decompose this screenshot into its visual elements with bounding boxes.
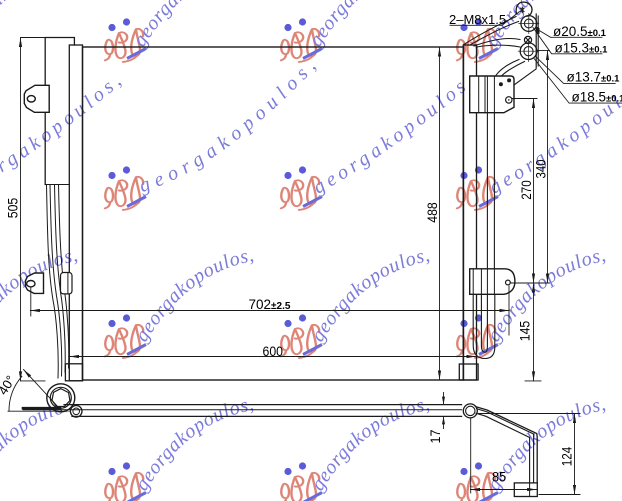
svg-text:georgakopoulos,: georgakopoulos, — [309, 67, 480, 198]
svg-text:600: 600 — [263, 344, 284, 359]
svg-text:georgakopoulos,: georgakopoulos, — [305, 0, 430, 51]
svg-text:340: 340 — [534, 160, 549, 179]
svg-text:270: 270 — [519, 180, 534, 200]
svg-text:georgakopoulos,: georgakopoulos, — [131, 244, 256, 346]
svg-text:145: 145 — [518, 321, 533, 342]
svg-text:ø20.5±0.1: ø20.5±0.1 — [553, 24, 607, 39]
svg-text:ø13.7±0.1: ø13.7±0.1 — [567, 70, 621, 85]
svg-text:georgakopoulos,: georgakopoulos, — [0, 67, 129, 198]
svg-text:georgakopoulos,: georgakopoulos, — [136, 51, 324, 197]
svg-text:124: 124 — [560, 446, 575, 466]
svg-text:georgakopoulos,: georgakopoulos, — [307, 393, 432, 495]
svg-text:georgakopoulos,: georgakopoulos, — [0, 0, 78, 51]
svg-text:40°: 40° — [0, 373, 18, 398]
svg-text:georgakopoulos,: georgakopoulos, — [131, 393, 256, 495]
svg-text:85: 85 — [492, 470, 506, 485]
svg-text:505: 505 — [6, 198, 21, 219]
svg-text:2–M8x1.5: 2–M8x1.5 — [449, 12, 506, 27]
svg-text:17: 17 — [428, 430, 443, 444]
svg-text:488: 488 — [425, 202, 440, 223]
svg-text:georgakopoulos,: georgakopoulos, — [307, 244, 432, 346]
svg-text:georgakopoulos,: georgakopoulos, — [129, 0, 254, 51]
svg-text:702±2.5: 702±2.5 — [249, 297, 291, 312]
svg-text:ø15.3±0.1: ø15.3±0.1 — [555, 41, 609, 56]
